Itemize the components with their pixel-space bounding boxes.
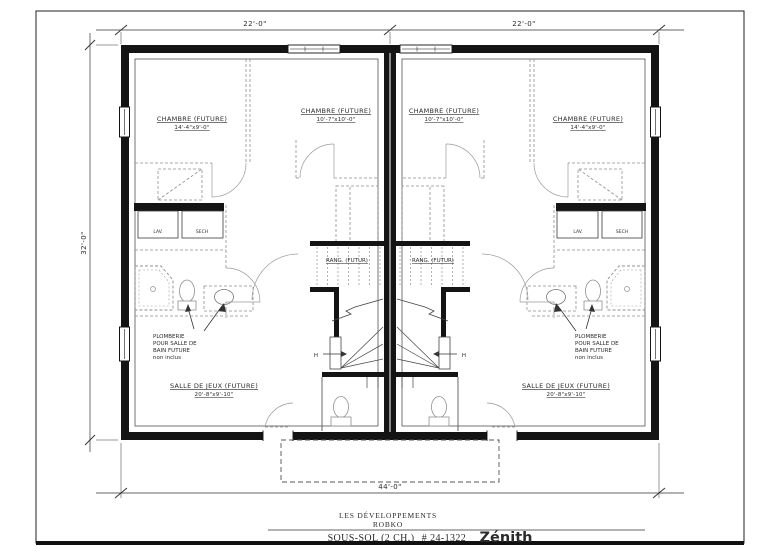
room-label: CHAMBRE (FUTURE): [157, 115, 227, 123]
room-label: CHAMBRE (FUTURE): [553, 115, 623, 123]
storage-label: RANG. (FUTUR): [412, 258, 454, 264]
dryer-label: SECH: [196, 229, 208, 235]
room-size: 14'-4"x9'-0": [570, 125, 605, 131]
washer-label: LAV.: [573, 229, 582, 235]
floor-plan-svg: 22'-0" 22'-0" 44'-0" 32'-0" CHAMBRE (FUT…: [0, 0, 777, 556]
room-label: CHAMBRE (FUTURE): [301, 107, 371, 115]
dim-bottom: 44'-0": [378, 483, 401, 491]
developer-name-2: ROBKO: [373, 520, 403, 529]
dryer-label: SECH: [616, 229, 628, 235]
plan-name: SOUS-SOL (2 CH.): [328, 533, 415, 544]
plumbing-note: non inclus: [153, 355, 181, 361]
plan-number: # 24-1322: [422, 533, 466, 544]
room-size: 10'-7"x10'-0": [317, 117, 356, 123]
room-size: 14'-4"x9'-0": [174, 125, 209, 131]
plumbing-note: non inclus: [575, 355, 603, 361]
plumbing-note: PLOMBERIE: [575, 334, 607, 340]
plumbing-note: BAIN FUTURE: [153, 348, 190, 354]
plumbing-note: BAIN FUTURE: [575, 348, 612, 354]
room-size: 20'-8"x9'-10": [547, 392, 586, 398]
floor-plan-sheet: 22'-0" 22'-0" 44'-0" 32'-0" CHAMBRE (FUT…: [0, 0, 777, 556]
room-label: SALLE DE JEUX (FUTURE): [522, 382, 610, 390]
top-window-right: [400, 45, 452, 53]
stair-up-label: H: [314, 353, 318, 359]
title-block: LES DÉVELOPPEMENTS ROBKO SOUS-SOL (2 CH.…: [268, 510, 645, 546]
washer-label: LAV.: [153, 229, 162, 235]
room-label: SALLE DE JEUX (FUTURE): [170, 382, 258, 390]
dim-top-right: 22'-0": [512, 20, 535, 28]
deck-outline: [281, 440, 499, 482]
stair-up-label: H: [462, 353, 466, 359]
plumbing-note: POUR SALLE DE: [153, 341, 197, 347]
developer-name: LES DÉVELOPPEMENTS: [339, 510, 437, 520]
sheet-border: [36, 11, 744, 543]
plumbing-note: POUR SALLE DE: [575, 341, 619, 347]
top-window-left: [288, 45, 340, 53]
dim-top-left: 22'-0": [243, 20, 266, 28]
model-name: Zénith: [480, 530, 533, 546]
storage-label: RANG. (FUTUR): [326, 258, 368, 264]
plumbing-note: PLOMBERIE: [153, 334, 185, 340]
room-label: CHAMBRE (FUTURE): [409, 107, 479, 115]
party-wall: [384, 45, 396, 440]
room-size: 20'-8"x9'-10": [195, 392, 234, 398]
dim-left-side: 32'-0": [80, 231, 88, 254]
room-size: 10'-7"x10'-0": [425, 117, 464, 123]
